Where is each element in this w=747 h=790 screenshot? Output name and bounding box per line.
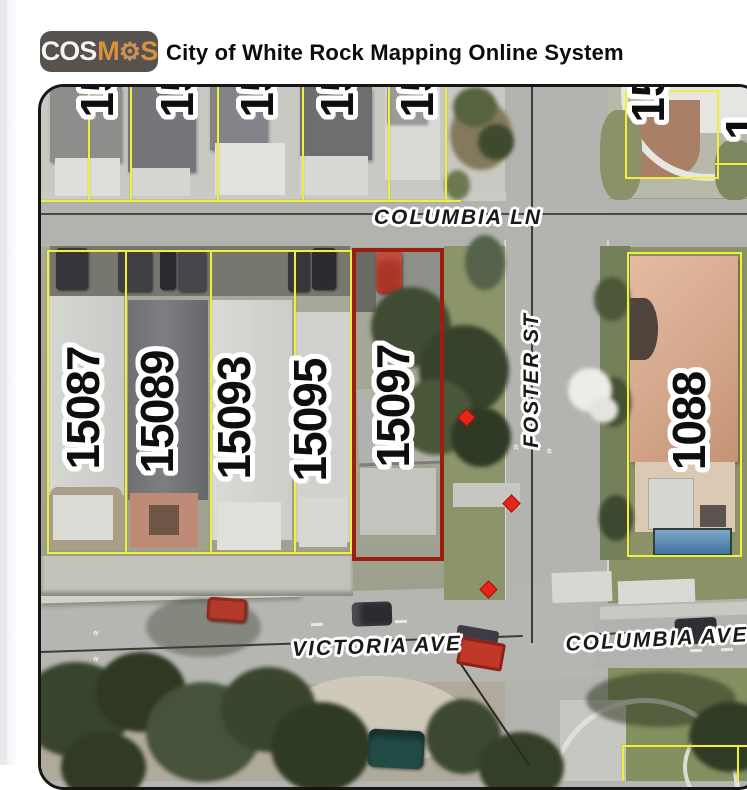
parcel-label-15093: 15093: [209, 328, 259, 508]
lane-dash: [311, 623, 323, 626]
map-viewport[interactable]: « « « «: [38, 84, 747, 790]
parcel-line: [737, 745, 739, 781]
parcel-line: [41, 200, 461, 202]
parked-car: [56, 248, 88, 290]
parcel-line: [47, 552, 352, 554]
curb-median: [618, 579, 696, 605]
street-label-foster-st: FOSTER ST: [517, 270, 547, 490]
car-on-victoria: [206, 597, 248, 624]
parcel-label-truncated: 15: [624, 84, 672, 152]
parked-car: [118, 250, 152, 292]
retaining-wall: [41, 556, 353, 596]
shrub: [453, 87, 497, 127]
parcel-label-truncated: 15: [153, 84, 201, 147]
flowering-tree: [590, 397, 618, 423]
logo-text-s: S: [140, 36, 157, 67]
tree-canopy: [594, 277, 630, 321]
parked-car: [288, 250, 310, 292]
parcel-line: [47, 250, 49, 552]
parcel-line: [130, 87, 132, 200]
parcel-line: [445, 87, 447, 200]
car-on-victoria: [352, 601, 393, 626]
parcel-label-truncated: 15: [313, 84, 361, 147]
parked-car: [160, 250, 176, 290]
courtyard-planter: [149, 505, 179, 535]
parcel-line: [217, 87, 219, 200]
tree-canopy: [271, 702, 371, 790]
house-wall: [215, 143, 285, 195]
shrub: [445, 170, 470, 200]
parcel-label-15087: 15087: [58, 318, 108, 498]
parcel-label-15089: 15089: [132, 322, 182, 502]
gear-icon: ⚙: [119, 39, 140, 64]
parked-car: [178, 250, 206, 292]
parcel-label-15097: 15097: [368, 316, 418, 496]
window-edge-strip: [0, 0, 7, 765]
parcel-label-15095: 15095: [285, 330, 335, 510]
parcel-label-truncated: 1: [718, 84, 747, 182]
parcel-label-truncated: 15: [233, 84, 281, 147]
parcel-line: [388, 87, 390, 200]
logo-text-m: M: [97, 36, 119, 67]
parcel-label-1088: 1088: [664, 331, 714, 511]
deck: [217, 502, 281, 550]
deck: [53, 495, 113, 540]
parked-suv: [367, 729, 425, 770]
house-wall: [300, 156, 368, 195]
tree-canopy: [465, 235, 505, 290]
parcel-line: [47, 250, 352, 252]
parcel-line: [622, 745, 624, 781]
shrub: [478, 124, 514, 160]
window-edge-shadow: [7, 0, 19, 765]
logo-text-cos: COS: [41, 36, 97, 67]
street-label-columbia-ln: COLUMBIA LN: [348, 203, 568, 233]
parcel-line: [302, 87, 304, 200]
lane-dash: [395, 620, 407, 623]
parcel-label-truncated: 15: [73, 84, 121, 147]
parked-car: [312, 248, 336, 290]
house-wall: [130, 168, 190, 196]
cosmos-logo[interactable]: COSM⚙S: [40, 31, 158, 72]
aerial-basemap: « « « «: [41, 87, 747, 781]
parcel-line: [622, 745, 747, 747]
app-title: City of White Rock Mapping Online System: [166, 40, 726, 66]
parcel-line: [125, 250, 127, 552]
curb-corner: [551, 571, 612, 603]
parcel-label-truncated: 15: [393, 84, 441, 147]
